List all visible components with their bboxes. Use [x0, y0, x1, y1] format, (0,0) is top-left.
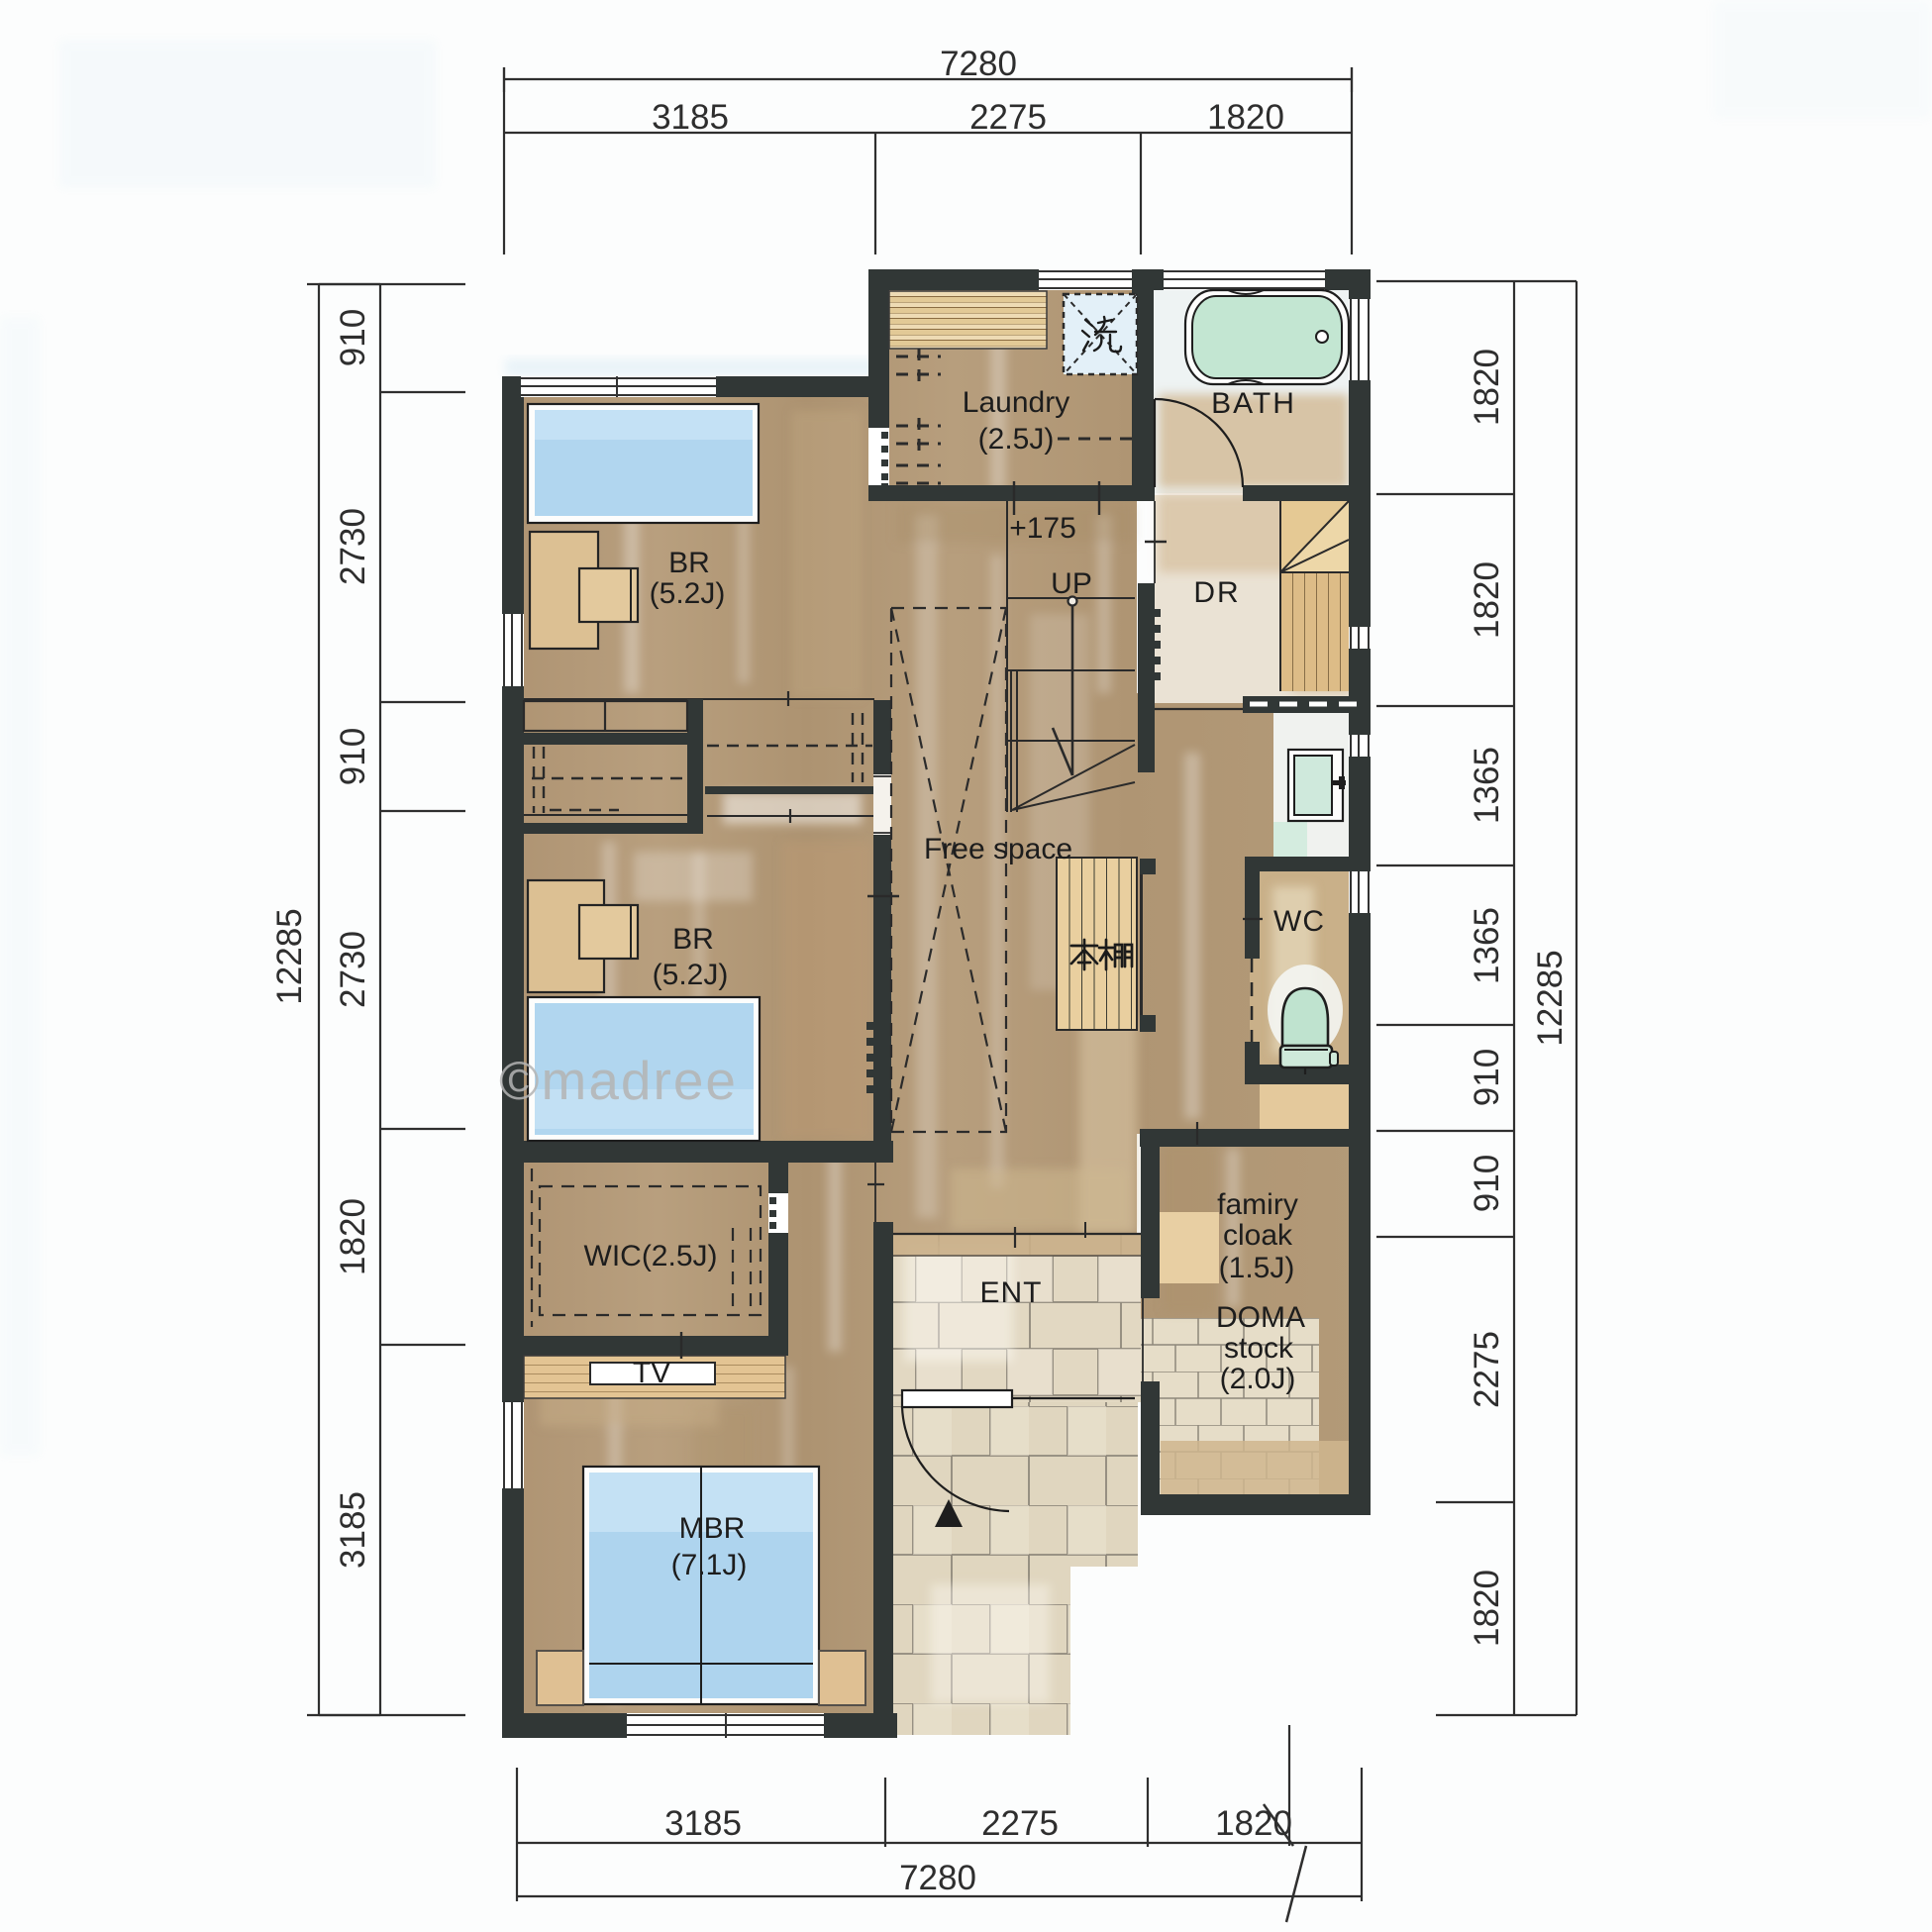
svg-text:+175: +175 [1009, 512, 1076, 545]
svg-text:©madree: ©madree [499, 1050, 738, 1111]
svg-text:DR: DR [1193, 576, 1240, 609]
svg-text:ENT: ENT [980, 1276, 1043, 1309]
svg-text:1820: 1820 [1468, 349, 1506, 426]
svg-text:1820: 1820 [1215, 1804, 1292, 1843]
svg-text:910: 910 [1468, 1155, 1506, 1212]
svg-text:1820: 1820 [1207, 98, 1284, 137]
svg-text:2730: 2730 [334, 508, 372, 585]
svg-text:TV: TV [633, 1357, 670, 1389]
svg-text:12285: 12285 [270, 908, 309, 1004]
svg-text:12285: 12285 [1531, 950, 1570, 1046]
svg-text:910: 910 [334, 728, 372, 785]
svg-text:(2.5J): (2.5J) [978, 423, 1055, 456]
svg-text:1820: 1820 [1468, 1570, 1506, 1647]
svg-text:910: 910 [1468, 1049, 1506, 1106]
svg-text:WIC(2.5J): WIC(2.5J) [584, 1240, 718, 1272]
svg-text:7280: 7280 [940, 45, 1017, 83]
svg-text:7280: 7280 [899, 1859, 976, 1897]
svg-text:cloak: cloak [1223, 1219, 1293, 1252]
svg-text:(5.2J): (5.2J) [650, 577, 726, 610]
svg-text:(2.0J): (2.0J) [1220, 1363, 1296, 1395]
svg-text:1820: 1820 [1468, 561, 1506, 639]
svg-text:stock: stock [1224, 1332, 1294, 1365]
svg-text:3185: 3185 [652, 98, 729, 137]
svg-text:UP: UP [1051, 567, 1092, 600]
svg-text:(7.1J): (7.1J) [671, 1549, 748, 1581]
svg-text:2275: 2275 [981, 1804, 1059, 1843]
svg-text:1365: 1365 [1468, 907, 1506, 984]
svg-text:2275: 2275 [1468, 1331, 1506, 1408]
svg-text:(5.2J): (5.2J) [653, 959, 729, 991]
svg-text:DOMA: DOMA [1216, 1301, 1305, 1334]
svg-text:1365: 1365 [1468, 747, 1506, 824]
svg-text:BATH: BATH [1211, 387, 1296, 420]
svg-text:3185: 3185 [664, 1804, 742, 1843]
svg-text:Free space: Free space [924, 833, 1072, 865]
svg-text:3185: 3185 [334, 1491, 372, 1569]
svg-text:Laundry: Laundry [963, 386, 1069, 419]
svg-text:1820: 1820 [334, 1198, 372, 1275]
svg-text:WC: WC [1273, 905, 1325, 938]
svg-text:BR: BR [668, 547, 710, 579]
svg-text:910: 910 [334, 309, 372, 366]
svg-text:(1.5J): (1.5J) [1219, 1252, 1295, 1284]
svg-text:BR: BR [672, 923, 714, 956]
svg-text:famiry: famiry [1217, 1188, 1298, 1221]
svg-text:MBR: MBR [679, 1512, 746, 1545]
svg-text:2275: 2275 [969, 98, 1047, 137]
svg-text:2730: 2730 [334, 931, 372, 1008]
